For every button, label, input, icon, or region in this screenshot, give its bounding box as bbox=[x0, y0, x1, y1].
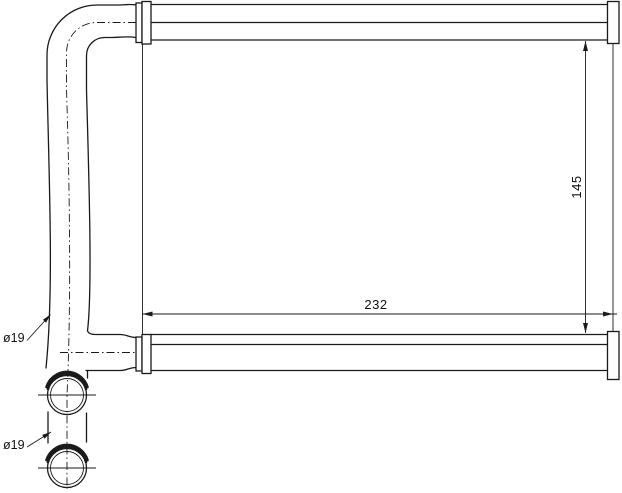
dim-arrow-top bbox=[583, 41, 588, 51]
dimension-core-width: 232 bbox=[143, 297, 618, 317]
core-outline bbox=[143, 40, 614, 337]
dim-arrow-left bbox=[143, 312, 153, 317]
bottom-tank-collar-body bbox=[142, 335, 151, 374]
pipe-diameter-callouts: ø19 ø19 bbox=[3, 315, 51, 453]
inlet-pipe-inner-edge bbox=[87, 37, 137, 338]
outlet-pipe-bottom-edge bbox=[86, 368, 137, 371]
top-tank-collar-ring bbox=[136, 3, 142, 43]
bottom-tank-collar-ring bbox=[136, 337, 142, 371]
top-header-tank bbox=[136, 2, 619, 45]
technical-drawing-canvas: 232 145 bbox=[0, 0, 622, 493]
dim-label-core-height: 145 bbox=[569, 175, 584, 198]
top-tank-collar-body bbox=[142, 2, 151, 45]
outlet-pipe bbox=[48, 368, 137, 444]
dim-arrow-bottom bbox=[583, 323, 588, 333]
outlet-diameter-label: ø19 bbox=[3, 438, 25, 452]
outlet-diameter-leader-arrow bbox=[42, 432, 51, 439]
pipe-centerlines bbox=[60, 23, 149, 490]
inlet-pipe-centerline bbox=[67, 23, 137, 490]
heater-core-drawing: 232 145 bbox=[0, 0, 622, 493]
dimension-core-height: 145 bbox=[569, 41, 588, 333]
top-tank-right-end-cap bbox=[608, 2, 620, 44]
dim-label-core-width: 232 bbox=[364, 297, 387, 312]
inlet-pipe bbox=[46, 4, 137, 368]
bottom-tank-right-end-cap bbox=[608, 332, 620, 380]
bottom-header-tank bbox=[136, 332, 619, 380]
inlet-pipe-outer-edge bbox=[46, 4, 136, 368]
inlet-diameter-label: ø19 bbox=[3, 331, 25, 345]
dim-arrow-right bbox=[603, 312, 613, 317]
